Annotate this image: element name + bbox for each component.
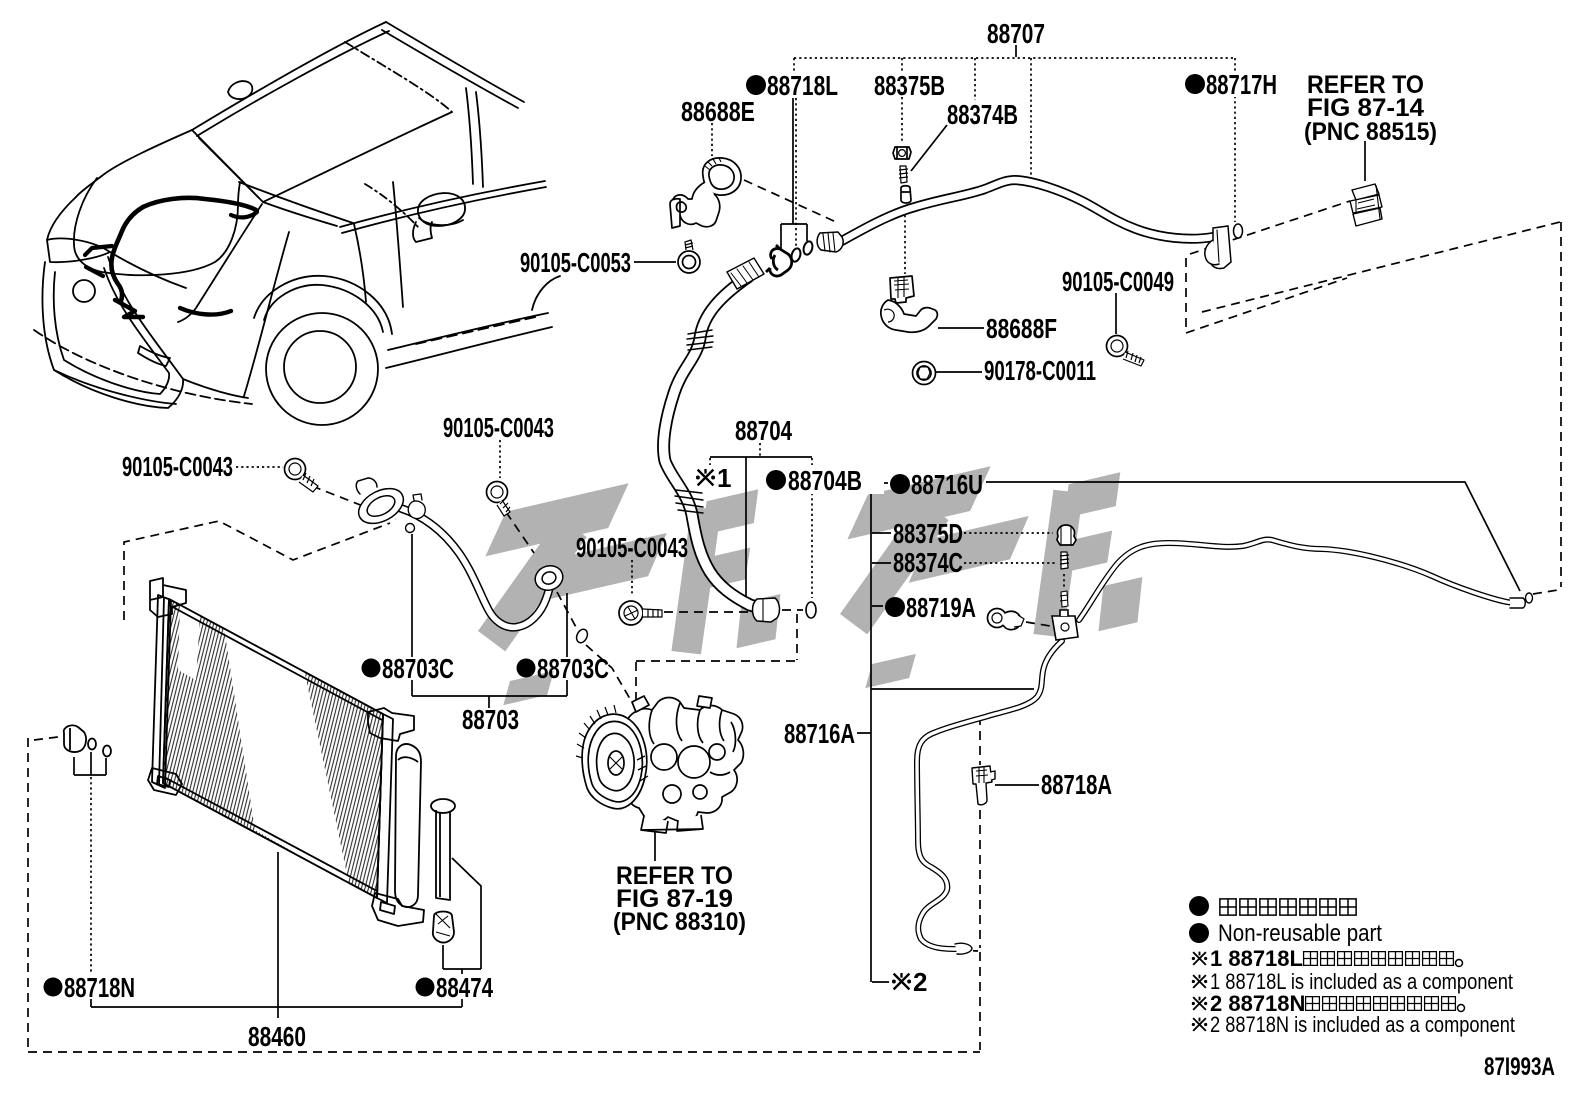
svg-text:88718N: 88718N [64,972,135,1003]
svg-text:88688E: 88688E [681,96,755,127]
svg-text:88718A: 88718A [1041,769,1112,800]
svg-text:88374B: 88374B [947,99,1018,130]
svg-text:88474: 88474 [436,972,493,1003]
svg-text:1: 1 [717,463,731,493]
svg-text:88718L: 88718L [767,70,838,101]
svg-text:88374C: 88374C [893,547,963,578]
svg-text:88716U: 88716U [911,469,983,500]
svg-text:90105-C0043: 90105-C0043 [122,451,233,482]
svg-text:1 88718L: 1 88718L [1210,946,1303,971]
svg-text:88719A: 88719A [906,592,976,623]
svg-text:88716A: 88716A [784,718,855,749]
svg-text:88704: 88704 [735,415,792,446]
svg-text:88717H: 88717H [1206,69,1277,100]
svg-text:2: 2 [913,967,927,997]
svg-text:88703C: 88703C [537,653,609,684]
svg-text:88703C: 88703C [382,653,454,684]
svg-text:88375B: 88375B [874,70,945,101]
svg-text:(PNC 88515): (PNC 88515) [1304,118,1437,146]
svg-text:2 88718N is included as a comp: 2 88718N is included as a component [1210,1012,1515,1037]
svg-text:90105-C0053: 90105-C0053 [520,247,631,278]
svg-text:88688F: 88688F [986,313,1057,344]
svg-text:88707: 88707 [987,18,1045,49]
svg-text:Non-reusable part: Non-reusable part [1218,920,1382,947]
svg-text:90105-C0049: 90105-C0049 [1062,266,1174,297]
svg-text:90105-C0043: 90105-C0043 [443,412,554,443]
svg-text:88704B: 88704B [788,465,862,496]
svg-text:90105-C0043: 90105-C0043 [576,532,688,563]
svg-text:88375D: 88375D [893,518,963,549]
svg-text:(PNC 88310): (PNC 88310) [613,908,746,936]
svg-text:90178-C0011: 90178-C0011 [984,355,1096,386]
svg-text:87I993A: 87I993A [1484,1053,1555,1081]
svg-text:88460: 88460 [248,1021,306,1052]
svg-text:88703: 88703 [462,704,519,735]
